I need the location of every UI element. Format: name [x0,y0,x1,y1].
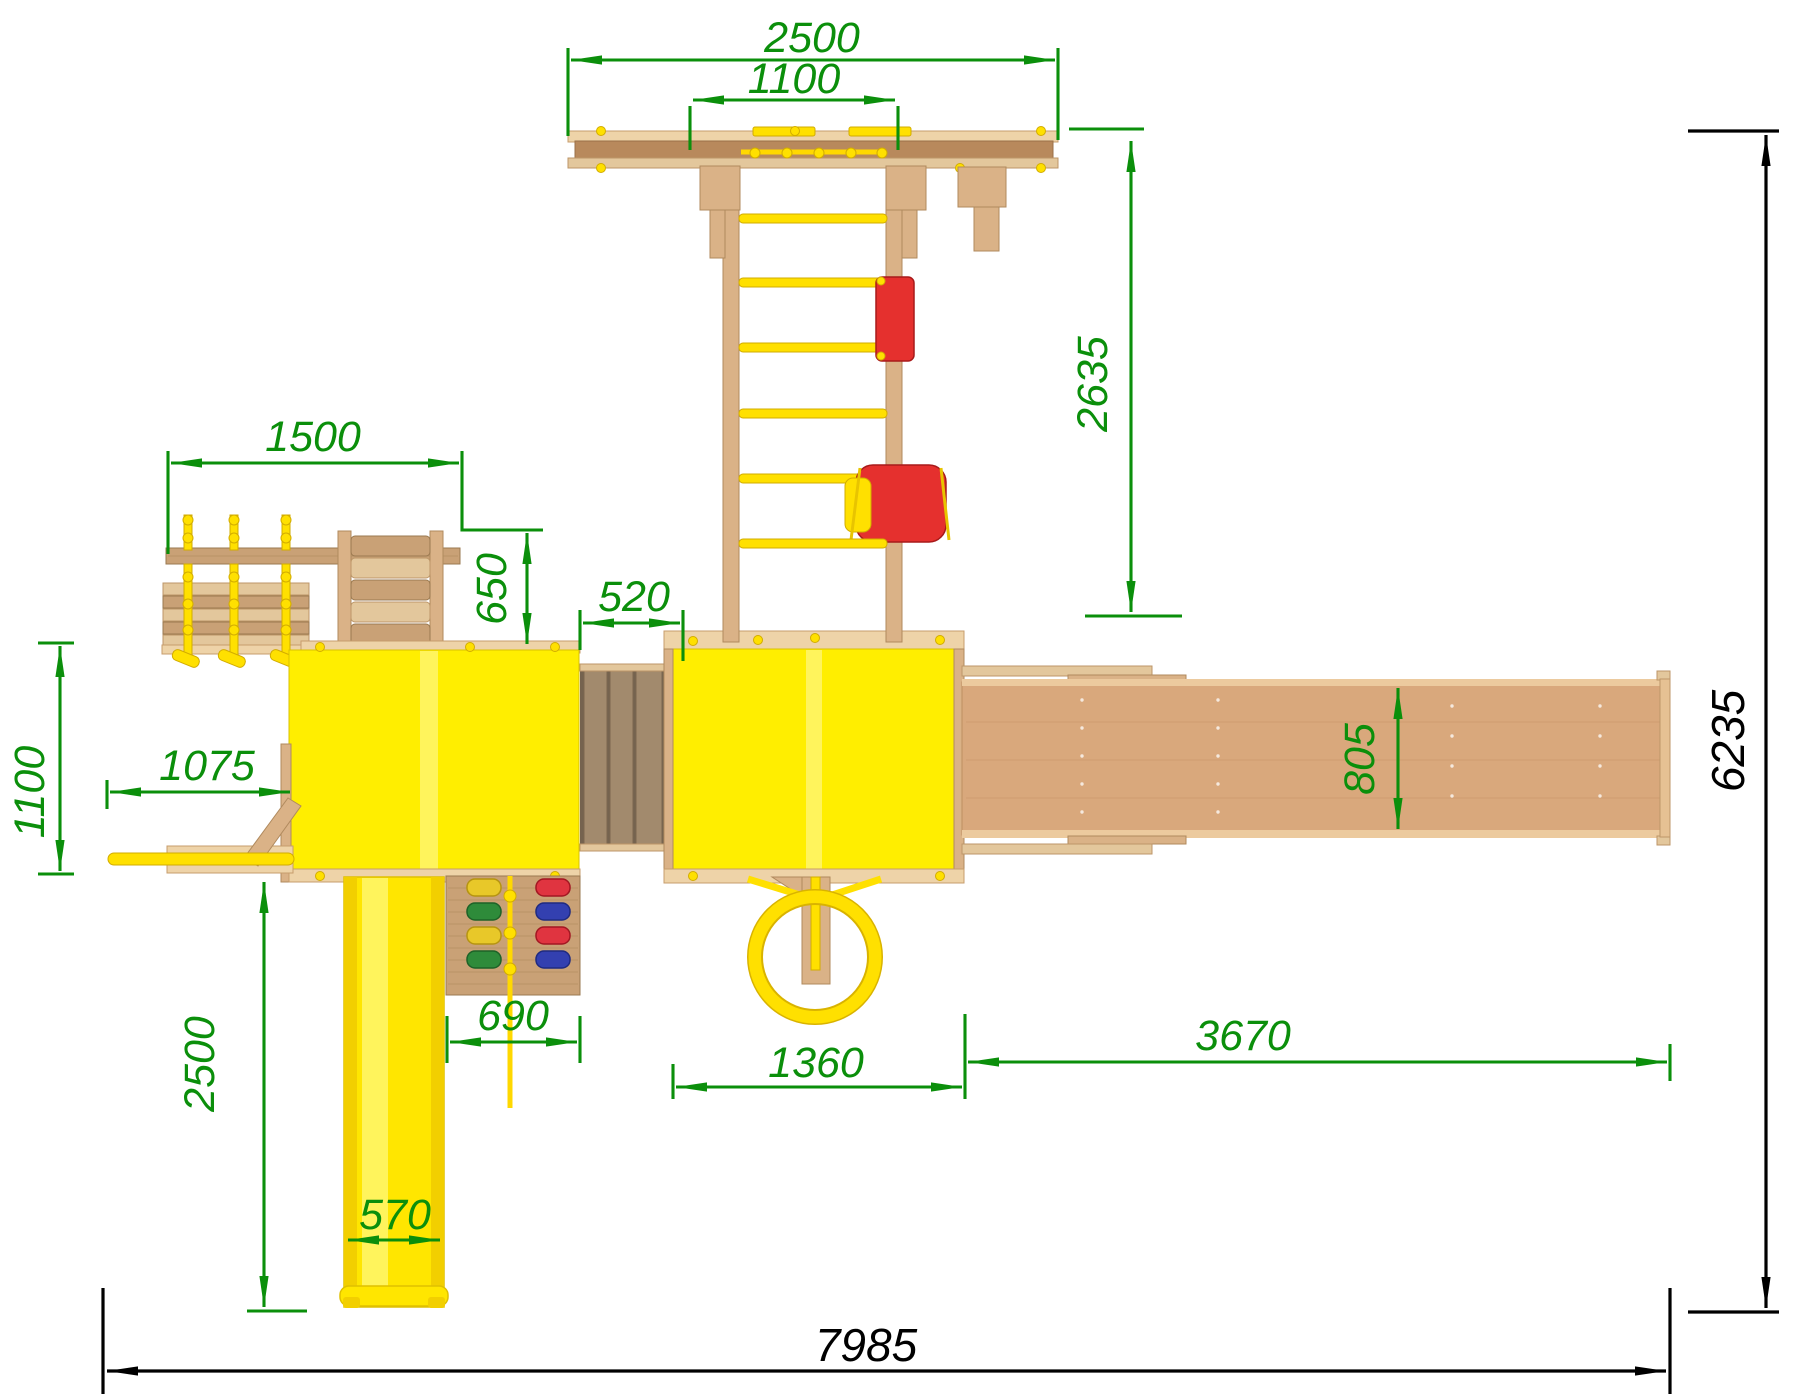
dim-swing-frame-offset: 650 [468,533,527,644]
dim-label-swing-frame-length: 1500 [265,413,361,461]
dim-label-overall-length: 7985 [815,1319,918,1371]
dim-overall-depth: 6235 [1688,131,1779,1312]
balance-beam [108,798,301,873]
swing-beam-right [962,666,1670,854]
dim-slide-length: 2500 [176,882,307,1311]
dim-overall-length: 7985 [103,1288,1670,1394]
slide [340,877,448,1308]
dim-label-slide-width: 570 [359,1191,431,1239]
balance-beam-bar [108,853,294,865]
technical-drawing-canvas: 2500 1100 2635 1500 650 [0,0,1800,1395]
dim-slide-width: 570 [348,1191,440,1240]
red-side-panel [876,277,914,361]
red-swing-seat [845,465,949,542]
ladder-rungs [739,214,887,483]
bridge [580,664,665,851]
dim-swing-frame-length: 1500 [168,413,543,554]
ladder-right-rail [886,150,902,642]
dim-label-swing-bench-depth: 1100 [6,746,54,839]
dim-label-swing-beam-length: 3670 [1195,1012,1291,1060]
left-platform [281,641,580,882]
dim-label-climbing-wall-width: 690 [477,992,549,1040]
right-platform [664,631,964,883]
dim-label-bridge-length: 520 [598,573,670,621]
dim-label-swing-beam-width: 805 [1336,722,1384,795]
dim-label-monkey-bars-width: 1100 [748,55,841,103]
dim-label-rings-bay-width: 1360 [768,1039,864,1087]
dim-swing-bench-depth: 1100 [6,643,74,874]
dim-rings-bay-width: 1360 [673,1014,965,1099]
swing-beam-body [962,682,1670,835]
climbing-ramp [338,531,443,648]
gym-rings [748,877,882,1024]
dim-label-monkey-bars-length: 2635 [1069,335,1117,433]
dim-label-balance-beam-length: 1075 [159,742,256,790]
monkey-bars [568,127,1058,643]
slide-body [344,877,444,1307]
dim-balance-beam-length: 1075 [107,742,290,809]
dim-climbing-wall-width: 690 [447,992,580,1063]
dim-monkey-bars-length: 2635 [1069,129,1182,616]
swing-ropes-upper [183,515,291,550]
dim-swing-beam-length: 3670 [968,1012,1670,1081]
dim-label-swing-frame-offset: 650 [468,553,516,625]
dim-label-overall-depth: 6235 [1702,689,1754,792]
dim-label-slide-length: 2500 [176,1016,224,1113]
